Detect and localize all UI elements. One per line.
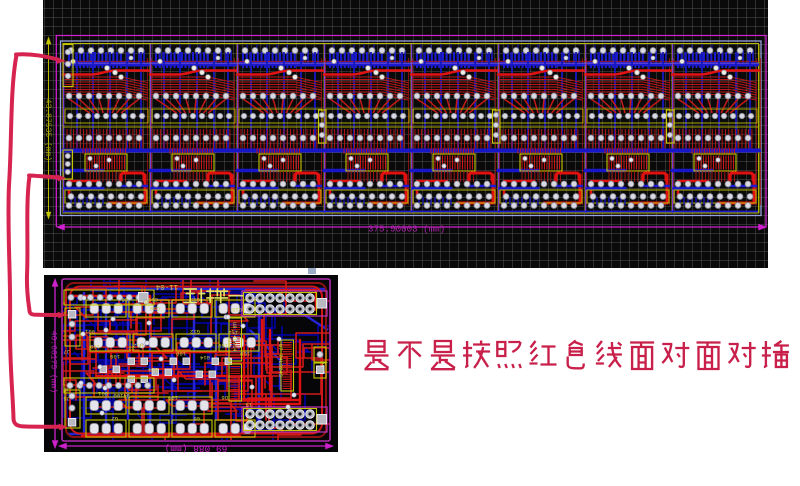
svg-text:1S: 1S <box>245 401 252 408</box>
svg-text:R12: R12 <box>133 342 143 349</box>
svg-text:G2: G2 <box>111 415 118 422</box>
svg-text:B14: B14 <box>147 366 158 373</box>
svg-text:814: 814 <box>199 354 210 361</box>
svg-text:D6: D6 <box>221 394 228 401</box>
svg-text:J3: J3 <box>321 360 328 367</box>
svg-text:100: 100 <box>176 350 186 357</box>
svg-text:06: 06 <box>193 415 200 422</box>
svg-text:11-04: 11-04 <box>155 282 178 290</box>
svg-text:100: 100 <box>240 350 250 357</box>
svg-text:J7: J7 <box>63 348 70 355</box>
svg-text:40.60175 (mm): 40.60175 (mm) <box>49 331 58 393</box>
svg-text:001: 001 <box>84 328 95 335</box>
svg-text:U8 74LS14: U8 74LS14 <box>231 322 238 352</box>
svg-text:U7 74LS245: U7 74LS245 <box>277 344 284 377</box>
svg-text:J8: J8 <box>63 386 70 393</box>
svg-text:J6: J6 <box>144 298 151 305</box>
svg-text:84100: 84100 <box>113 392 130 399</box>
svg-text:43.87535 (mm): 43.87535 (mm) <box>43 99 52 161</box>
svg-text:001: 001 <box>97 390 108 397</box>
svg-text:100: 100 <box>218 342 228 349</box>
svg-text:C10: C10 <box>150 305 160 312</box>
svg-text:J5: J5 <box>63 395 70 402</box>
svg-text:100: 100 <box>110 353 120 360</box>
svg-text:G15: G15 <box>232 306 242 313</box>
svg-text:100: 100 <box>90 343 100 350</box>
svg-text:375.90003 (mm): 375.90003 (mm) <box>368 224 445 235</box>
svg-text:G12: G12 <box>190 328 200 335</box>
svg-text:100: 100 <box>168 394 178 401</box>
svg-text:60: 60 <box>121 296 128 303</box>
svg-text:69.088 (mm): 69.088 (mm) <box>165 443 228 454</box>
